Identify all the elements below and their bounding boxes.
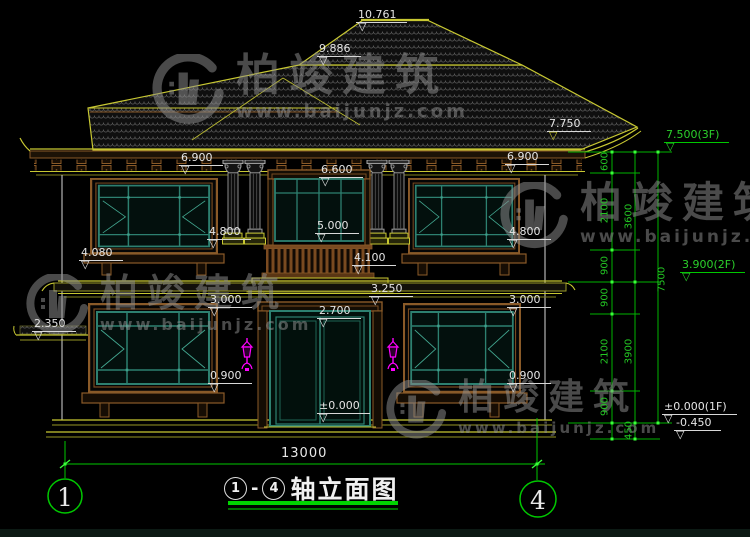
window-2f-left	[91, 179, 217, 253]
elevation-mark-0900-left: 0.900 ▽	[208, 370, 252, 392]
elevation-triangle-icon: ▽	[666, 142, 729, 151]
axis-bubble-4: 4	[520, 486, 556, 515]
elevation-triangle-icon: ▽	[210, 307, 252, 316]
elevation-triangle-icon: ▽	[371, 296, 413, 305]
title-axis-end: 4	[262, 477, 285, 500]
window-1f-left	[89, 304, 217, 392]
total-width-dimension: 13000	[281, 446, 327, 461]
chain-dim-7500: 7500	[657, 262, 668, 298]
elevation-triangle-icon: ▽	[81, 260, 123, 269]
elevation-triangle-icon: ▽	[676, 430, 721, 439]
floor-mark-3f: 7.500(3F) ▽	[664, 129, 729, 151]
title-underline-thin	[228, 508, 398, 510]
elevation-mark-4800-left: 4.800 ▽	[207, 226, 251, 248]
elevation-triangle-icon: ▽	[210, 383, 252, 392]
title-axis-start: 1	[224, 477, 247, 500]
chain-dim-600: 600	[600, 144, 611, 180]
elevation-triangle-icon: ▽	[354, 265, 396, 274]
bottom-strip	[0, 529, 750, 537]
elevation-triangle-icon: ▽	[549, 131, 591, 140]
elevation-mark-2700: 2.700 ▽	[317, 305, 361, 327]
title-underline	[228, 501, 398, 505]
floor-mark-2f: 3.900(2F) ▽	[680, 259, 745, 281]
elevation-triangle-icon: ▽	[181, 165, 223, 174]
elevation-triangle-icon: ▽	[319, 56, 361, 65]
elevation-mark-3000-left: 3.000 ▽	[208, 294, 252, 316]
chain-dim-900b: 900	[600, 280, 611, 316]
elevation-triangle-icon: ▽	[509, 239, 551, 248]
elevation-mark-0900-right: 0.900 ▽	[507, 370, 551, 392]
elevation-mark-7750: 7.750 ▽	[547, 118, 591, 140]
chain-dim-450: 450	[624, 413, 635, 449]
wall-lamp-icon	[388, 338, 398, 371]
interfloor-cornice	[42, 281, 575, 297]
balcony-column	[389, 160, 410, 244]
floor-mark-ground: -0.450 ▽	[674, 417, 721, 439]
elevation-triangle-icon: ▽	[319, 413, 370, 422]
elevation-triangle-icon: ▽	[358, 22, 407, 31]
elevation-mark-10761: 10.761 ▽	[356, 9, 407, 31]
cad-elevation-drawing: 10.761 ▽ 9.886 ▽ 7.750 ▽ 6.900 ▽ 6.900 ▽…	[0, 0, 750, 537]
elevation-triangle-icon: ▽	[509, 383, 551, 392]
elevation-mark-5000: 5.000 ▽	[315, 220, 359, 242]
elevation-mark-3000-right: 3.000 ▽	[507, 294, 551, 316]
first-floor	[82, 302, 527, 428]
elevation-mark-3250: 3.250 ▽	[369, 283, 413, 305]
elevation-mark-4100: 4.100 ▽	[352, 252, 396, 274]
wall-lamp-icon	[242, 338, 252, 371]
elevation-mark-4080: 4.080 ▽	[79, 247, 123, 269]
elevation-mark-9886: 9.886 ▽	[317, 43, 361, 65]
chain-dim-2100a: 2100	[600, 193, 611, 229]
elevation-mark-4800-right: 4.800 ▽	[507, 226, 551, 248]
elevation-triangle-icon: ▽	[682, 272, 745, 281]
window-2f-right	[409, 179, 519, 253]
elevation-mark-6600: 6.600 ▽	[319, 164, 363, 186]
chain-dim-3900: 3900	[624, 334, 635, 370]
elevation-triangle-icon: ▽	[209, 239, 251, 248]
chain-dim-900a: 900	[600, 248, 611, 284]
chain-dim-3600: 3600	[624, 199, 635, 235]
elevation-mark-2350: 2.350 ▽	[32, 318, 76, 340]
elevation-mark-6900-left: 6.900 ▽	[179, 152, 223, 174]
elevation-mark-0000: ±0.000 ▽	[317, 400, 370, 422]
elevation-triangle-icon: ▽	[509, 307, 551, 316]
elevation-mark-6900-right: 6.900 ▽	[505, 151, 549, 173]
chain-dim-2100b: 2100	[600, 334, 611, 370]
elevation-triangle-icon: ▽	[507, 164, 549, 173]
elevation-triangle-icon: ▽	[317, 233, 359, 242]
elevation-triangle-icon: ▽	[34, 331, 76, 340]
axis-bubble-1: 1	[47, 483, 83, 512]
window-1f-right	[404, 304, 520, 392]
title-dash: -	[251, 478, 258, 499]
second-floor	[84, 160, 526, 292]
elevation-triangle-icon: ▽	[321, 177, 363, 186]
elevation-triangle-icon: ▽	[319, 318, 361, 327]
chain-dim-900c: 900	[600, 389, 611, 425]
